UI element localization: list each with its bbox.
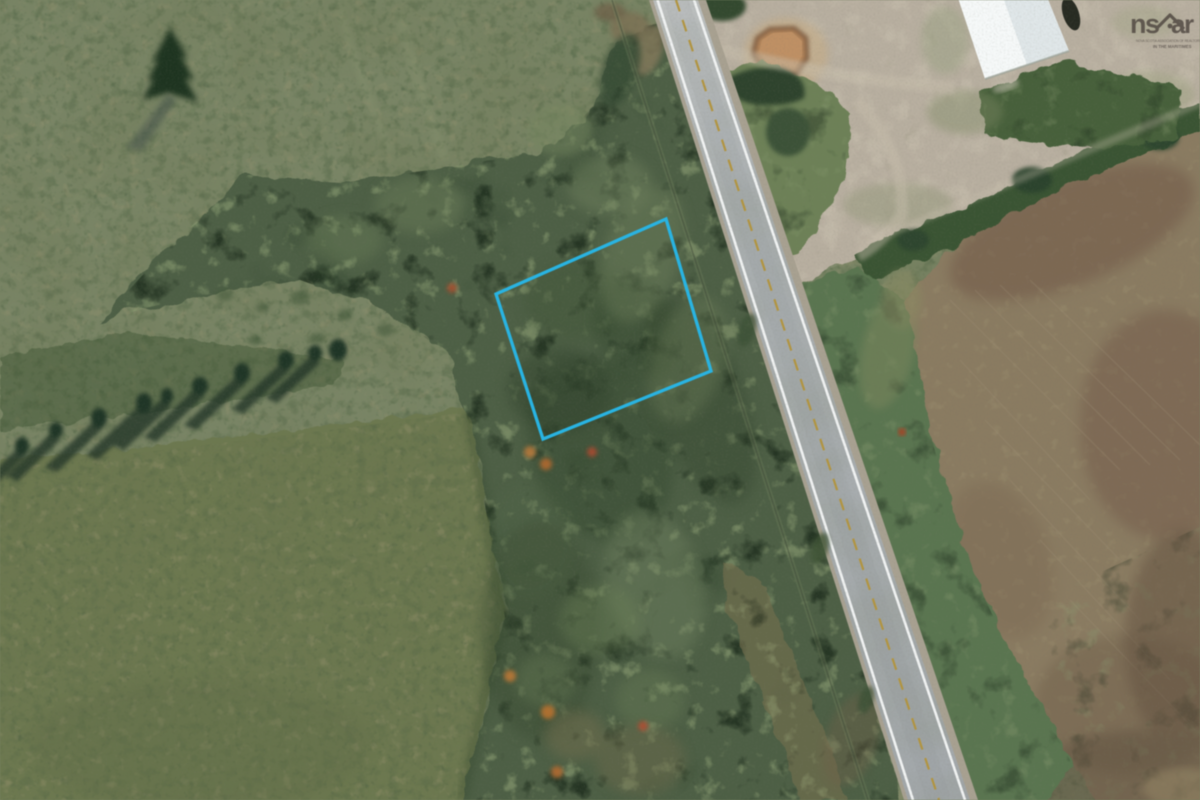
svg-text:ns: ns [1130, 9, 1159, 39]
svg-text:IN THE MARITIMES: IN THE MARITIMES [1153, 44, 1192, 49]
svg-text:ar: ar [1171, 9, 1194, 39]
svg-text:NOVA SCOTIA ASSOCIATION OF REA: NOVA SCOTIA ASSOCIATION OF REALTORS [1136, 39, 1200, 43]
